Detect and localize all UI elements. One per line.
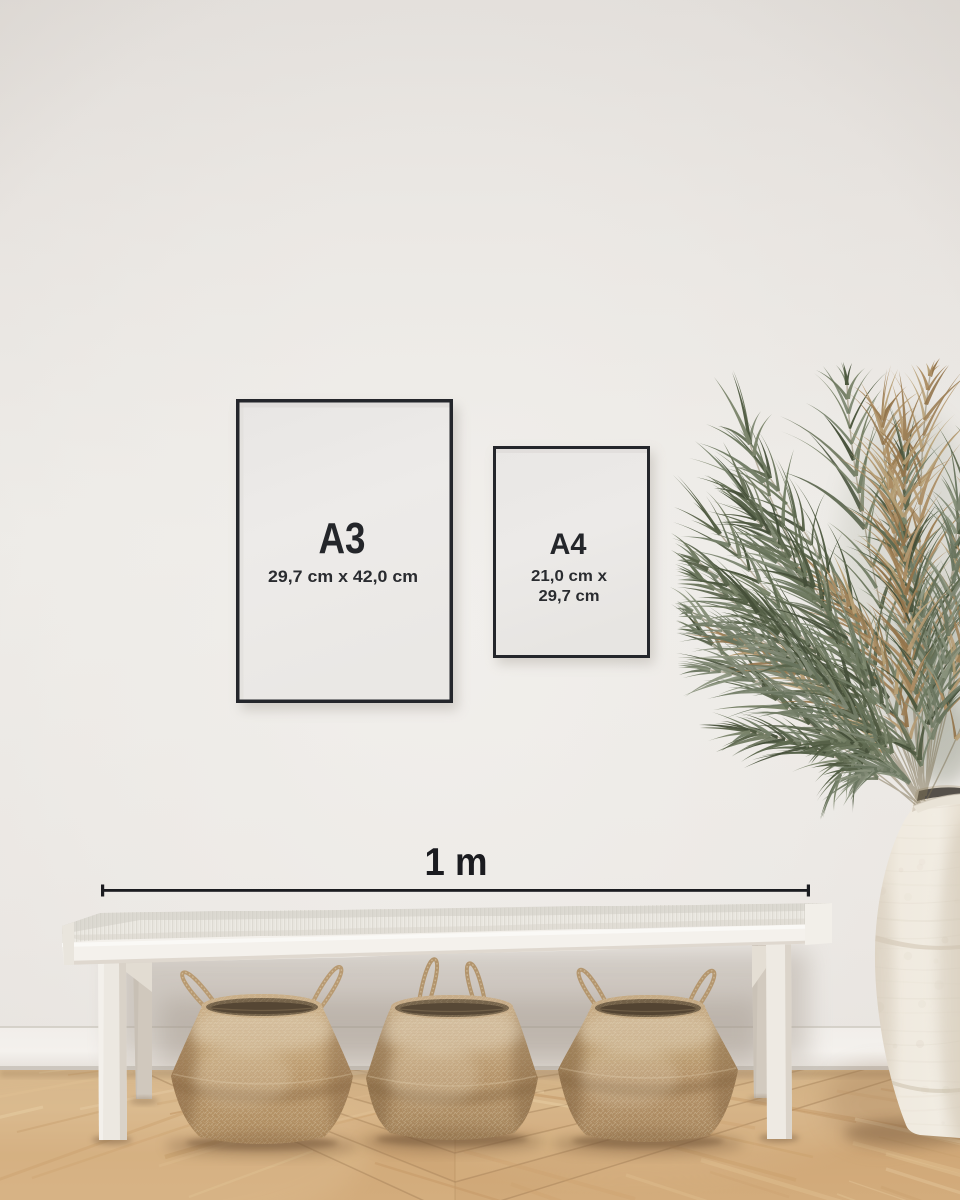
svg-text:21,0 cm x: 21,0 cm x — [531, 568, 607, 585]
svg-text:A4: A4 — [550, 528, 587, 561]
svg-text:29,7 cm: 29,7 cm — [539, 588, 600, 605]
svg-text:1 m: 1 m — [425, 841, 488, 884]
svg-text:A3: A3 — [319, 514, 366, 563]
svg-text:29,7 cm x 42,0 cm: 29,7 cm x 42,0 cm — [268, 568, 418, 586]
